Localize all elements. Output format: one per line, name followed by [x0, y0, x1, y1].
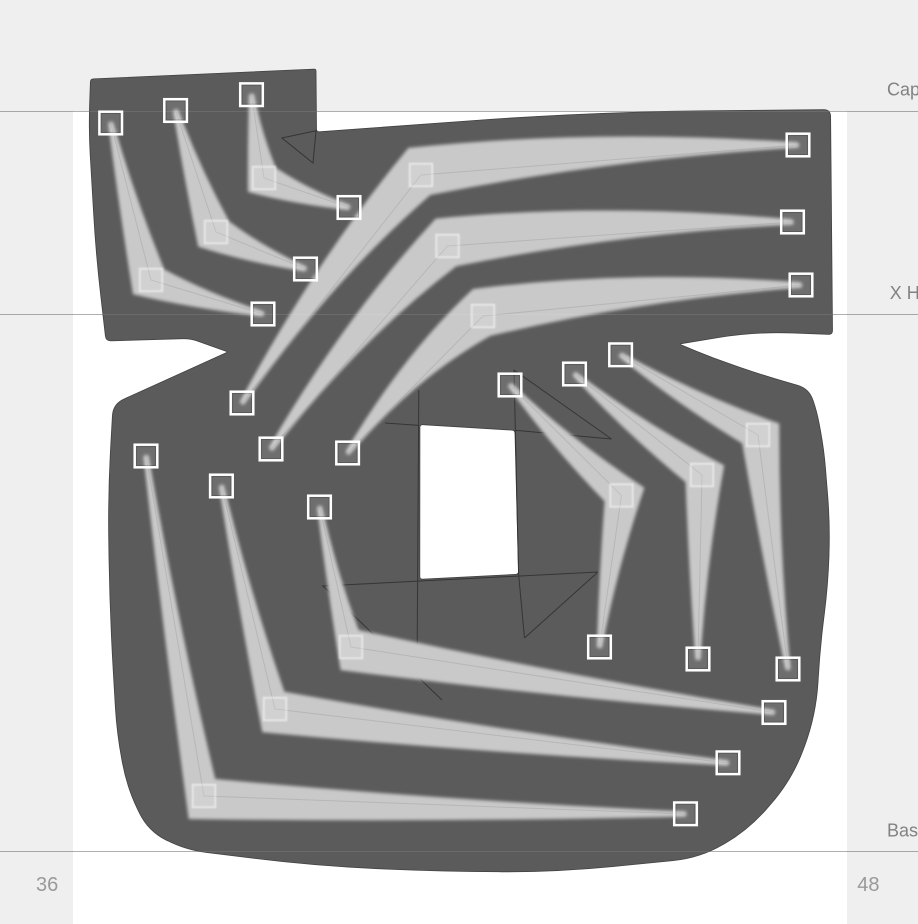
svg-text:48: 48: [857, 874, 879, 896]
svg-text:Cap height: Cap height: [887, 80, 918, 100]
svg-text:X Height: X Height: [890, 283, 918, 303]
svg-text:36: 36: [36, 874, 58, 896]
svg-text:Baseline: Baseline: [887, 821, 918, 841]
